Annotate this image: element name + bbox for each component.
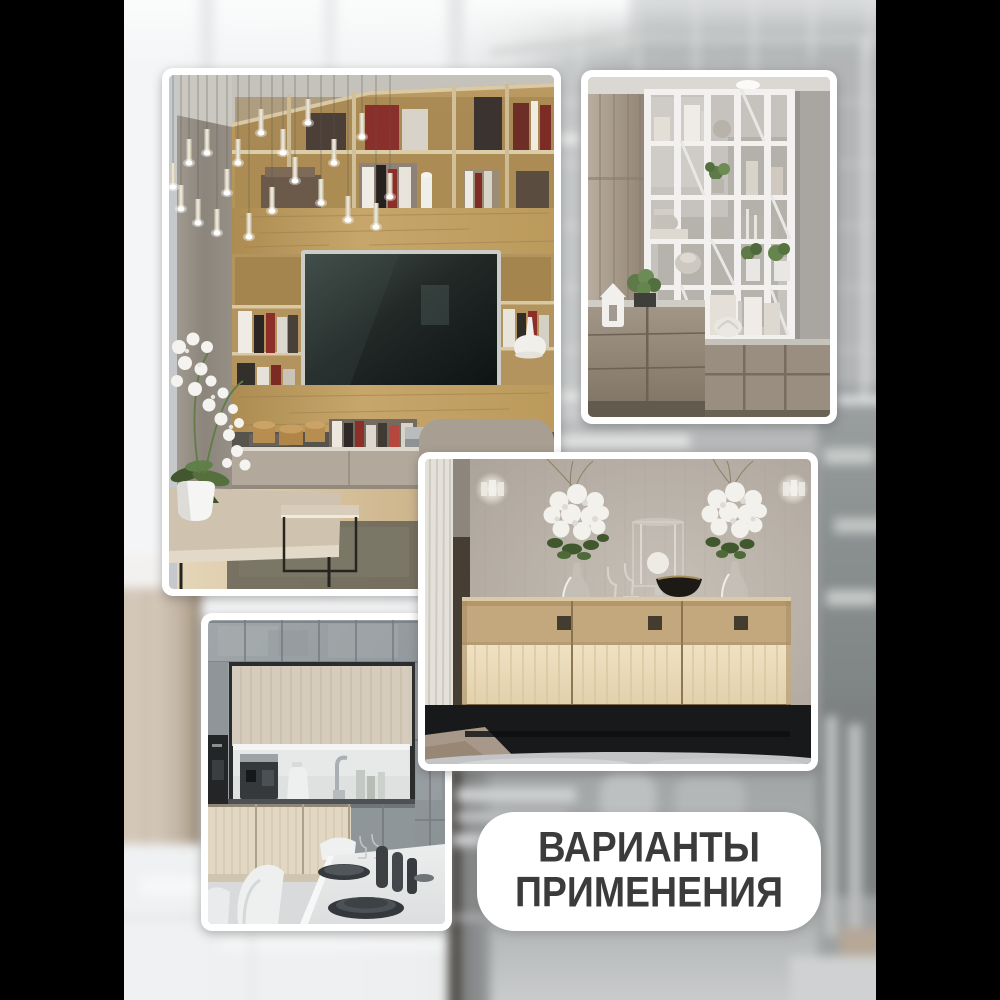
svg-text:ВАРИАНТЫ: ВАРИАНТЫ: [538, 824, 760, 872]
svg-text:ПРИМЕНЕНИЯ: ПРИМЕНЕНИЯ: [515, 869, 783, 917]
